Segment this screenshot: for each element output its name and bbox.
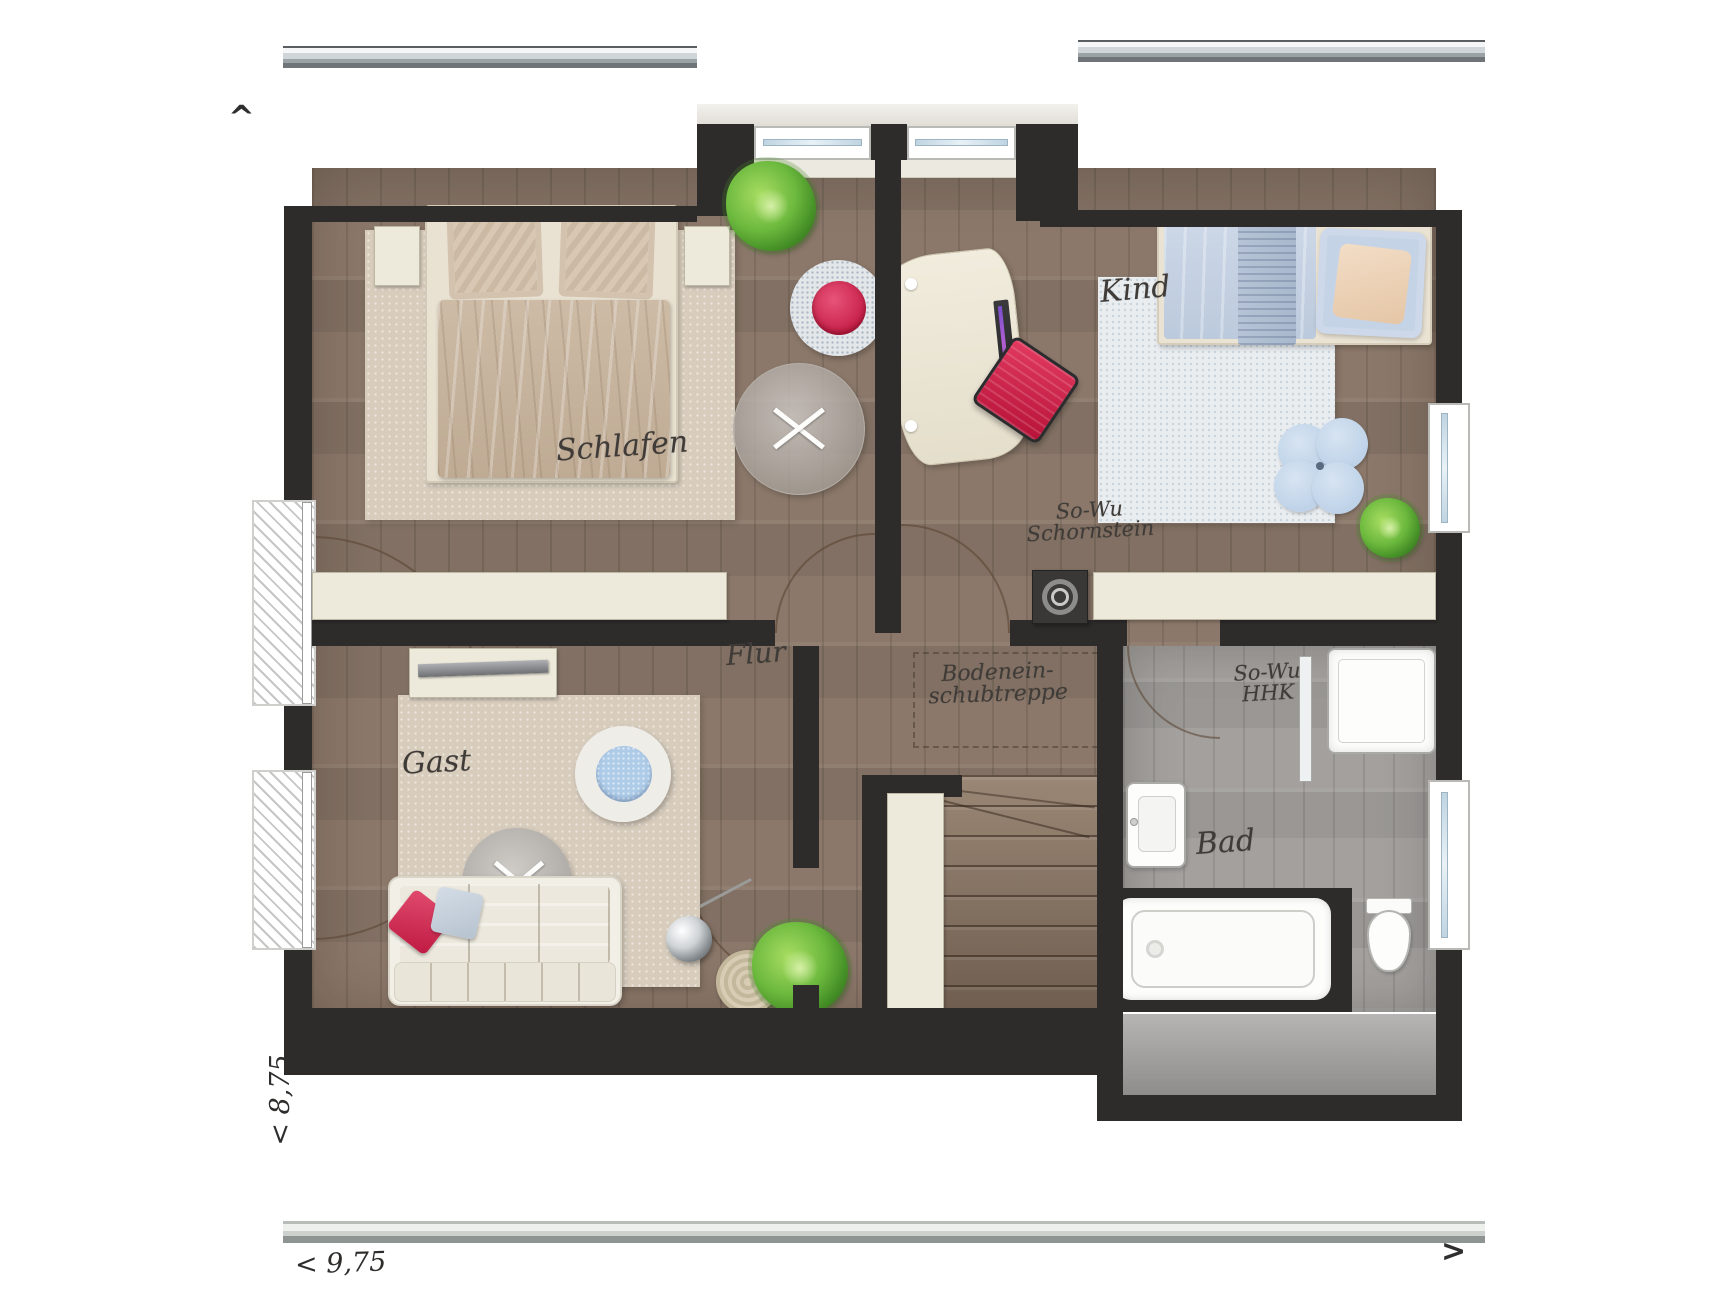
wall-right <box>1436 212 1462 403</box>
wall-left <box>284 706 312 770</box>
room-label-bad: Bad <box>1195 826 1256 861</box>
dimension-left: < 8,75 <box>265 1035 295 1165</box>
roof-ridge <box>283 46 697 68</box>
direction-arrow-icon: > <box>1441 1234 1466 1269</box>
wall-bottom <box>284 1008 1097 1075</box>
wall-stair-cap <box>862 775 950 793</box>
bed-pillow-right <box>559 212 656 299</box>
roof-top-right <box>1078 40 1485 219</box>
bed-pillow-left <box>447 212 544 299</box>
wall-kind-south-b <box>1220 620 1436 646</box>
wall-stair-right <box>1097 646 1123 1012</box>
room-label-kind: Kind <box>1099 272 1172 309</box>
wall-left <box>284 206 312 500</box>
plant-kind <box>1360 498 1420 558</box>
annotation-chimney: So-Wu Schornstein <box>1025 497 1155 546</box>
flower-cushion-center <box>1316 462 1324 470</box>
round-chair-blue-cushion <box>596 746 652 802</box>
desk-grommet <box>905 278 917 290</box>
bathtub-drain <box>1146 940 1164 958</box>
wall-left <box>284 950 312 1010</box>
annotation-hhk: So-Wu HHK <box>1233 660 1302 706</box>
window-frame <box>302 502 312 704</box>
window-top-schlafen <box>754 126 871 160</box>
roof-tiles <box>1078 62 1485 219</box>
window-right-kind <box>1428 403 1470 533</box>
floor-plan-canvas: Schlafen Kind Gast Flur Bad So-Wu Schorn… <box>0 0 1729 1295</box>
bed-pillow-peach <box>1332 243 1412 325</box>
dimension-bottom: < 9,75 <box>294 1246 386 1280</box>
round-chair-red-cushion <box>812 281 866 335</box>
window-top-kind <box>907 126 1016 160</box>
sofa-backrest <box>394 962 616 1002</box>
window-glass <box>1441 792 1448 938</box>
wall-stair-left <box>862 775 887 1012</box>
dormer-wall-right-corner <box>1016 124 1078 221</box>
nightstand-right <box>684 226 730 286</box>
sideboard-schlafen <box>312 572 727 620</box>
washbasin-bowl <box>1138 796 1176 852</box>
wall-schlafen-kind-divider <box>875 126 901 633</box>
desk-grommet <box>905 420 917 432</box>
staircase <box>944 775 1097 1012</box>
window-glass <box>763 139 862 146</box>
window-glass <box>915 139 1007 146</box>
room-label-gast: Gast <box>401 746 472 780</box>
shower-tray-inner <box>1338 659 1425 743</box>
window-frame <box>302 772 312 948</box>
tall-cabinet <box>887 793 944 1012</box>
window-right-bad <box>1428 780 1470 950</box>
roof-eave-gutter <box>283 1221 1485 1243</box>
window-glass <box>1441 413 1448 524</box>
wall-gast-east-lower <box>793 985 819 1012</box>
fern-plant-anteroom <box>726 161 816 251</box>
roof-top-left <box>283 46 697 214</box>
window-left-gast <box>252 770 316 950</box>
annotation-attic-stairs: Bodenein- schubtreppe <box>927 660 1068 710</box>
wall-schlafen-south <box>312 620 775 646</box>
chimney-flue-inner <box>1051 588 1069 606</box>
sofa-pillow-gray <box>430 886 485 941</box>
roof-tiles <box>283 68 697 214</box>
window-left-schlafen <box>252 500 316 706</box>
roof-tiles <box>283 1075 1485 1221</box>
nightstand-left <box>374 226 420 286</box>
sideboard-kind <box>1093 572 1436 620</box>
north-arrow-icon: ^ <box>228 98 255 136</box>
floor-lamp-shade <box>666 916 712 962</box>
single-bed-blanket-drape <box>1238 218 1296 345</box>
roof-bottom <box>283 1075 1485 1243</box>
roof-ridge <box>1078 40 1485 62</box>
washbasin-tap <box>1130 818 1138 826</box>
room-label-flur: Flur <box>725 638 787 671</box>
wall-right <box>1436 533 1462 780</box>
shower-glass-door <box>1299 656 1312 782</box>
wall-gast-east-upper <box>793 646 819 868</box>
